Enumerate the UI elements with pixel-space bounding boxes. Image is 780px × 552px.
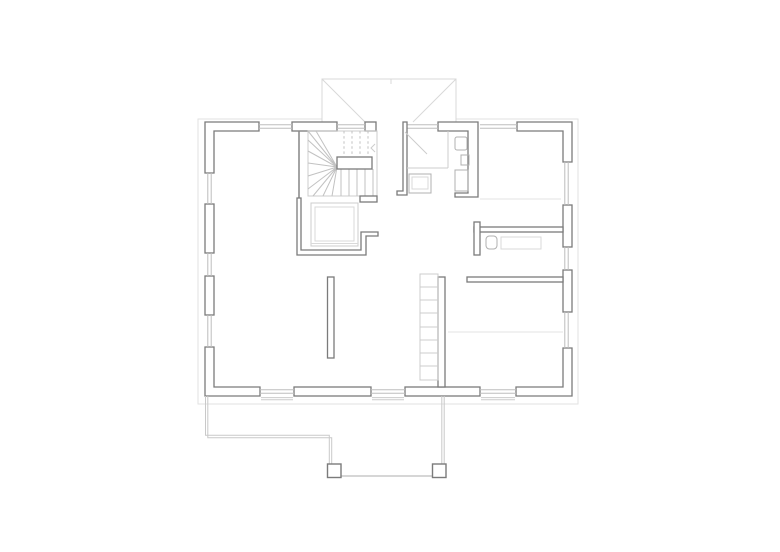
bedroom-left-wall: [438, 277, 445, 387]
wall-pier-bottom: [405, 387, 480, 396]
window: [565, 312, 568, 348]
toilet: [455, 137, 467, 150]
bathroom: [397, 122, 469, 195]
landing-wall-stub: [360, 196, 377, 202]
wall-pier-bottom: [294, 387, 371, 396]
window-glazing: [208, 125, 568, 393]
elevator-shaft: [297, 196, 378, 255]
wall-pier-right: [563, 270, 572, 312]
terrace-edge: [442, 396, 444, 464]
window: [208, 253, 211, 276]
bedroom: [420, 274, 563, 387]
wc-counter: [501, 237, 541, 249]
wall-pier-top: [292, 122, 337, 131]
wall-corner-top-left: [205, 122, 259, 173]
winder-stair: [299, 131, 377, 198]
wardrobe-shelf: [420, 274, 438, 380]
wall-pier-top-square: [365, 122, 376, 131]
wall-corner-bottom-left: [205, 347, 260, 396]
wall-pier-right: [563, 205, 572, 247]
roof-hip-line: [322, 79, 365, 122]
window: [480, 125, 517, 128]
terrace-edge: [208, 396, 332, 464]
eave-overhang-line: [198, 119, 578, 404]
wc-divider-wall: [474, 227, 563, 232]
stair-treads-upper: [344, 131, 368, 157]
bedroom-top-wall: [467, 277, 563, 282]
window: [407, 125, 438, 128]
elevator-cab-inner: [315, 207, 354, 241]
bathtub: [455, 170, 468, 191]
door-swing-mark: [371, 144, 375, 152]
wc-room: [474, 199, 563, 255]
terrace-post: [328, 464, 342, 478]
stair-treads-lower: [341, 169, 373, 196]
wall-bathroom-right: [438, 122, 478, 197]
stair-handrail: [337, 157, 372, 169]
wall-corner-top-right: [517, 122, 572, 162]
wc-sink: [486, 236, 497, 249]
stair-winder-fan: [308, 131, 337, 196]
window: [480, 390, 516, 393]
kitchen-island: [328, 277, 335, 358]
window: [565, 162, 568, 205]
exterior-walls: [205, 122, 572, 396]
wall-pier-left: [205, 204, 214, 253]
threshold-lines: [261, 398, 515, 400]
window: [208, 173, 211, 204]
terrace-edge: [206, 396, 330, 464]
shower-enclosure: [407, 131, 448, 168]
terrace: [206, 396, 447, 478]
window: [565, 247, 568, 270]
window: [371, 390, 405, 393]
shower-door-line: [405, 132, 427, 154]
porch-roof-outline: [322, 79, 456, 122]
terrace-post: [433, 464, 447, 478]
wall-pier-left: [205, 276, 214, 315]
washbasin-inner: [412, 177, 428, 189]
roof-hip-line: [413, 79, 456, 122]
window: [259, 125, 292, 128]
floor-plan-canvas: [0, 0, 780, 552]
window: [260, 390, 294, 393]
wall-corner-bottom-right: [516, 348, 572, 396]
floor-plan-page: [0, 0, 780, 552]
window: [208, 315, 211, 347]
elevator-cab-outline: [311, 203, 358, 246]
wc-left-wall-stub: [474, 222, 480, 255]
window: [337, 125, 365, 128]
